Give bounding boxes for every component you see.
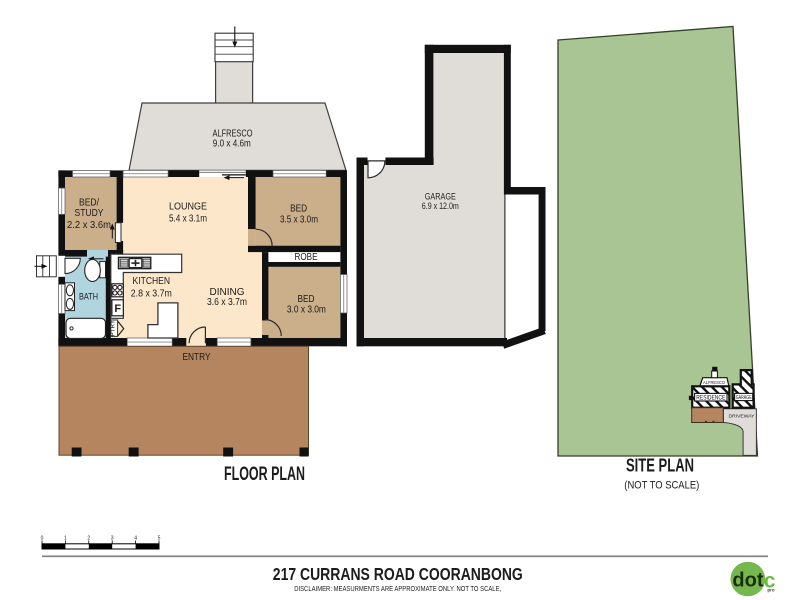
svg-text:RESIDENCE: RESIDENCE: [696, 396, 725, 402]
svg-text:STUDY: STUDY: [75, 207, 104, 219]
svg-text:dot: dot: [732, 570, 763, 592]
svg-text:2.8 x 3.7m: 2.8 x 3.7m: [131, 289, 172, 300]
svg-text:3.5 x 3.0m: 3.5 x 3.0m: [280, 215, 318, 226]
svg-text:DISCLAIMER: MEASURMENTS ARE AP: DISCLAIMER: MEASURMENTS ARE APPROXIMATE …: [294, 584, 501, 593]
svg-text:ROBE: ROBE: [295, 251, 318, 263]
svg-text:BED: BED: [290, 203, 307, 215]
svg-text:6.9 x 12.0m: 6.9 x 12.0m: [422, 201, 459, 211]
svg-text:5.4 x 3.1m: 5.4 x 3.1m: [169, 214, 207, 225]
svg-text:GARAGE: GARAGE: [736, 395, 752, 401]
svg-text:9.0 x 4.6m: 9.0 x 4.6m: [213, 139, 251, 150]
svg-text:ALFRESCO: ALFRESCO: [703, 380, 726, 385]
svg-text:2.2 x 3.6m: 2.2 x 3.6m: [67, 220, 111, 231]
svg-text:SITE PLAN: SITE PLAN: [626, 456, 694, 476]
svg-text:pro: pro: [767, 588, 775, 593]
svg-text:BED: BED: [298, 293, 315, 305]
svg-text:PTRY: PTRY: [109, 319, 116, 336]
svg-text:ENTRY: ENTRY: [183, 351, 211, 363]
svg-text:DRIVEWAY: DRIVEWAY: [729, 414, 755, 419]
svg-text:KITCHEN: KITCHEN: [133, 275, 171, 287]
svg-text:217 CURRANS ROAD COORANBONG: 217 CURRANS ROAD COORANBONG: [273, 564, 523, 584]
svg-text:3.6 x 3.7m: 3.6 x 3.7m: [207, 297, 247, 308]
svg-text:3.0 x 3.0m: 3.0 x 3.0m: [287, 305, 326, 316]
svg-text:F: F: [114, 303, 121, 315]
svg-text:BATH: BATH: [79, 292, 98, 303]
svg-text:(NOT TO SCALE): (NOT TO SCALE): [624, 480, 699, 492]
svg-text:LOUNGE: LOUNGE: [169, 201, 207, 213]
svg-text:FLOOR PLAN: FLOOR PLAN: [224, 464, 305, 485]
